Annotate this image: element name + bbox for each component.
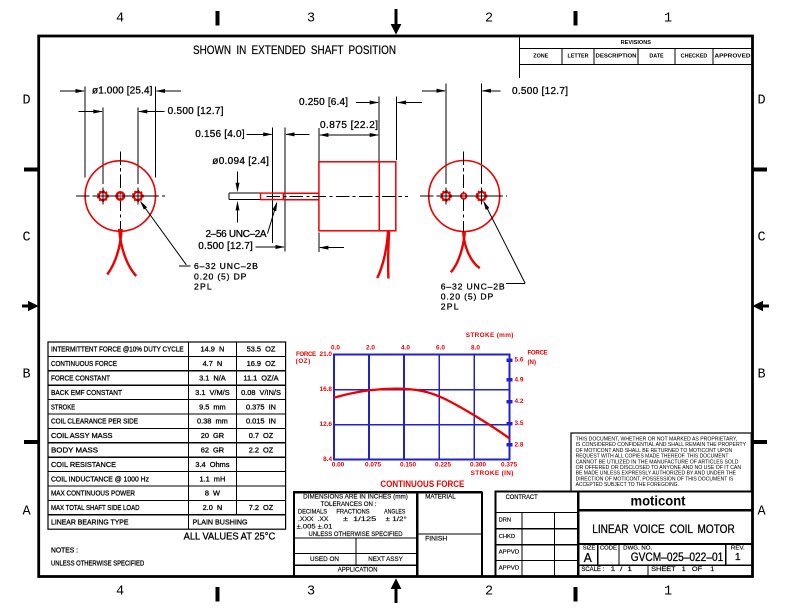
- svg-text:CONTRACT: CONTRACT: [506, 494, 538, 501]
- svg-text:FINISH: FINISH: [425, 535, 447, 542]
- svg-text:16.9 OZ: 16.9 OZ: [247, 359, 276, 368]
- svg-text:(N): (N): [528, 359, 537, 366]
- svg-text:C: C: [757, 231, 765, 246]
- svg-text:B: B: [22, 368, 30, 383]
- svg-text:0.500 [12.7]: 0.500 [12.7]: [168, 106, 224, 117]
- svg-text:21.0: 21.0: [320, 351, 333, 358]
- svg-text:12.6: 12.6: [320, 421, 333, 428]
- svg-text:UNLESS OTHERWISE SPECIFIED: UNLESS OTHERWISE SPECIFIED: [309, 531, 403, 538]
- svg-text:COIL INDUCTANCE @ 1000 Hz: COIL INDUCTANCE @ 1000 Hz: [51, 474, 149, 483]
- svg-text:SHEET 1 OF 1: SHEET 1 OF 1: [651, 566, 715, 573]
- svg-text:ACCEPTED SUBJECT TO THE FOREGO: ACCEPTED SUBJECT TO THE FOREGOING.: [576, 482, 679, 488]
- svg-text:STROKE (mm): STROKE (mm): [466, 332, 514, 339]
- svg-text:11.1 OZ/A: 11.1 OZ/A: [243, 374, 278, 383]
- svg-text:0.150: 0.150: [400, 461, 416, 468]
- svg-text:4: 4: [116, 12, 124, 27]
- svg-text:3.1 V/M/S: 3.1 V/M/S: [195, 388, 230, 397]
- svg-text:0.38 mm: 0.38 mm: [197, 417, 228, 426]
- svg-text:± 1/125: ± 1/125: [343, 516, 377, 523]
- svg-text:CONTINUOUS FORCE: CONTINUOUS FORCE: [51, 359, 117, 368]
- svg-text:MAX CONTINUOUS POWER: MAX CONTINUOUS POWER: [51, 489, 135, 498]
- svg-text:A: A: [22, 505, 31, 520]
- svg-text:A: A: [757, 505, 766, 520]
- svg-text:14.9 N: 14.9 N: [201, 345, 225, 354]
- svg-text:4.2: 4.2: [515, 398, 524, 405]
- svg-text:D: D: [22, 94, 30, 109]
- svg-text:0.250 [6.4]: 0.250 [6.4]: [299, 97, 348, 108]
- svg-text:PLAIN BUSHING: PLAIN BUSHING: [193, 518, 248, 527]
- svg-text:FRACTIONS: FRACTIONS: [336, 509, 370, 516]
- svg-text:1 / 1: 1 / 1: [611, 566, 633, 573]
- svg-text:6.0: 6.0: [436, 344, 445, 351]
- svg-text:0.20 (5) DP: 0.20 (5) DP: [194, 271, 247, 281]
- svg-text:0.00: 0.00: [332, 461, 345, 468]
- svg-text:0.875 [22.2]: 0.875 [22.2]: [320, 120, 378, 131]
- svg-text:GVCM–025–022–01: GVCM–025–022–01: [631, 551, 724, 564]
- svg-text:moticont: moticont: [631, 494, 686, 509]
- svg-text:8.0: 8.0: [471, 344, 480, 351]
- svg-text:2PL: 2PL: [441, 301, 460, 311]
- svg-text:SCALE :: SCALE :: [581, 566, 604, 573]
- svg-text:9.5 mm: 9.5 mm: [199, 402, 226, 411]
- svg-text:REVISIONS: REVISIONS: [621, 40, 652, 46]
- svg-text:ø0.094 [2.4]: ø0.094 [2.4]: [212, 156, 269, 167]
- svg-text:DATE: DATE: [649, 54, 664, 60]
- svg-text:LETTER: LETTER: [568, 54, 589, 60]
- svg-text:2.0: 2.0: [366, 344, 375, 351]
- svg-text:4.7 N: 4.7 N: [203, 359, 223, 368]
- svg-text:0.375 IN: 0.375 IN: [246, 402, 276, 411]
- svg-text:FORCE: FORCE: [528, 350, 548, 357]
- svg-text:LINEAR BEARING TYPE: LINEAR BEARING TYPE: [51, 518, 129, 527]
- svg-text:ø1.000 [25.4]: ø1.000 [25.4]: [92, 86, 153, 97]
- svg-text:CHECKED: CHECKED: [681, 54, 708, 60]
- svg-text:APPROVED: APPROVED: [715, 54, 751, 60]
- svg-text:INTERMITTENT FORCE @10% DUTY C: INTERMITTENT FORCE @10% DUTY CYCLE: [51, 345, 184, 354]
- svg-text:2: 2: [485, 585, 493, 600]
- svg-text:COIL CLEARANCE PER SIDE: COIL CLEARANCE PER SIDE: [51, 417, 138, 426]
- svg-text:2: 2: [485, 12, 493, 27]
- svg-text:LINEAR VOICE COIL MOTOR: LINEAR VOICE COIL MOTOR: [592, 523, 734, 536]
- svg-text:0.500 [12.7]: 0.500 [12.7]: [512, 86, 568, 97]
- svg-text:SHOWN IN EXTENDED SHAFT POSITI: SHOWN IN EXTENDED SHAFT POSITION: [193, 43, 396, 57]
- svg-text:D: D: [757, 94, 765, 109]
- svg-text:5.6: 5.6: [515, 357, 524, 364]
- svg-text:BACK EMF CONSTANT: BACK EMF CONSTANT: [51, 388, 122, 397]
- svg-text:8 W: 8 W: [205, 489, 220, 498]
- svg-text:4.0: 4.0: [401, 344, 410, 351]
- svg-text:MATERIAL: MATERIAL: [425, 494, 456, 501]
- svg-text:4: 4: [116, 585, 124, 600]
- svg-text:3.4 Ohms: 3.4 Ohms: [195, 460, 229, 469]
- svg-text:FORCE: FORCE: [296, 351, 316, 358]
- svg-text:STROKE: STROKE: [51, 402, 75, 411]
- svg-text:DECIMALS: DECIMALS: [298, 509, 328, 516]
- svg-text:CONTINUOUS FORCE: CONTINUOUS FORCE: [380, 479, 465, 490]
- svg-text:16.8: 16.8: [320, 386, 333, 393]
- svg-text:MAX TOTAL SHAFT SIDE LOAD: MAX TOTAL SHAFT SIDE LOAD: [51, 503, 140, 512]
- svg-text:7.2 OZ: 7.2 OZ: [249, 503, 274, 512]
- svg-text:CODE: CODE: [600, 545, 617, 551]
- svg-text:CHKD: CHKD: [499, 534, 516, 540]
- svg-text:0.300: 0.300: [470, 461, 486, 468]
- svg-text:0.500 [12.7]: 0.500 [12.7]: [198, 241, 253, 252]
- svg-text:6–32 UNC–2B: 6–32 UNC–2B: [441, 281, 505, 291]
- svg-text:0.156 [4.0]: 0.156 [4.0]: [195, 129, 245, 140]
- svg-text:1: 1: [735, 551, 741, 563]
- svg-text:NOTES :: NOTES :: [51, 546, 78, 555]
- svg-text:DRN: DRN: [499, 518, 511, 524]
- svg-text:COIL RESISTANCE: COIL RESISTANCE: [51, 460, 116, 469]
- svg-text:62 GR: 62 GR: [201, 446, 224, 455]
- svg-text:DESCRIPTION: DESCRIPTION: [596, 54, 637, 60]
- svg-text:B: B: [757, 368, 765, 383]
- svg-text:APPVD: APPVD: [499, 550, 520, 556]
- svg-text:NEXT ASSY: NEXT ASSY: [368, 556, 403, 563]
- svg-text:3.1 N/A: 3.1 N/A: [199, 374, 226, 383]
- svg-text:2.2 OZ: 2.2 OZ: [249, 446, 274, 455]
- svg-text:0.015 IN: 0.015 IN: [246, 417, 276, 426]
- svg-text:53.5 OZ: 53.5 OZ: [247, 345, 276, 354]
- svg-text:STROKE (IN): STROKE (IN): [471, 470, 514, 477]
- svg-text:3: 3: [307, 585, 315, 600]
- svg-text:TOLERANCES ON :: TOLERANCES ON :: [321, 501, 377, 508]
- svg-text:APPLICATION: APPLICATION: [338, 567, 378, 574]
- svg-text:3: 3: [307, 12, 315, 27]
- svg-text:2.0 N: 2.0 N: [203, 503, 223, 512]
- svg-text:0.075: 0.075: [365, 461, 381, 468]
- svg-text:USED ON: USED ON: [310, 556, 339, 563]
- svg-text:.XXX .XX: .XXX .XX: [298, 516, 329, 523]
- svg-text:±.005 ±.01: ±.005 ±.01: [297, 524, 333, 531]
- svg-text:APPVD: APPVD: [499, 566, 520, 572]
- svg-text:4.9: 4.9: [515, 376, 524, 383]
- svg-text:ALL VALUES AT 25°C: ALL VALUES AT 25°C: [184, 532, 276, 543]
- svg-text:COIL ASSY MASS: COIL ASSY MASS: [51, 431, 113, 440]
- svg-text:0.20 (5) DP: 0.20 (5) DP: [441, 292, 494, 302]
- svg-text:0.7 OZ: 0.7 OZ: [249, 431, 274, 440]
- svg-text:1.1 mH: 1.1 mH: [199, 474, 225, 483]
- svg-text:2–56 UNC–2A: 2–56 UNC–2A: [206, 229, 267, 240]
- svg-text:2.8: 2.8: [515, 441, 524, 448]
- svg-text:0.08 V/IN/S: 0.08 V/IN/S: [241, 388, 281, 397]
- svg-text:2PL: 2PL: [194, 282, 213, 292]
- svg-text:3.5: 3.5: [515, 420, 524, 427]
- svg-text:(OZ): (OZ): [296, 358, 311, 365]
- svg-text:± 1/2°: ± 1/2°: [386, 515, 408, 523]
- svg-text:FORCE CONSTANT: FORCE CONSTANT: [51, 374, 110, 383]
- svg-text:20 GR: 20 GR: [201, 431, 224, 440]
- svg-text:1: 1: [664, 585, 672, 600]
- svg-text:1: 1: [664, 12, 672, 27]
- svg-text:DIMENSIONS ARE IN INCHES (mm): DIMENSIONS ARE IN INCHES (mm): [303, 494, 408, 501]
- svg-text:0.375: 0.375: [501, 461, 517, 468]
- svg-text:ANGLES: ANGLES: [384, 509, 406, 516]
- svg-text:0.225: 0.225: [435, 461, 451, 468]
- svg-text:ZONE: ZONE: [533, 54, 548, 60]
- svg-text:6–32 UNC–2B: 6–32 UNC–2B: [194, 261, 258, 271]
- svg-text:A: A: [584, 550, 592, 565]
- svg-text:UNLESS OTHERWISE SPECIFIED: UNLESS OTHERWISE SPECIFIED: [51, 558, 144, 567]
- svg-text:C: C: [22, 231, 30, 246]
- svg-text:BODY MASS: BODY MASS: [51, 446, 98, 455]
- svg-text:0.0: 0.0: [331, 344, 340, 351]
